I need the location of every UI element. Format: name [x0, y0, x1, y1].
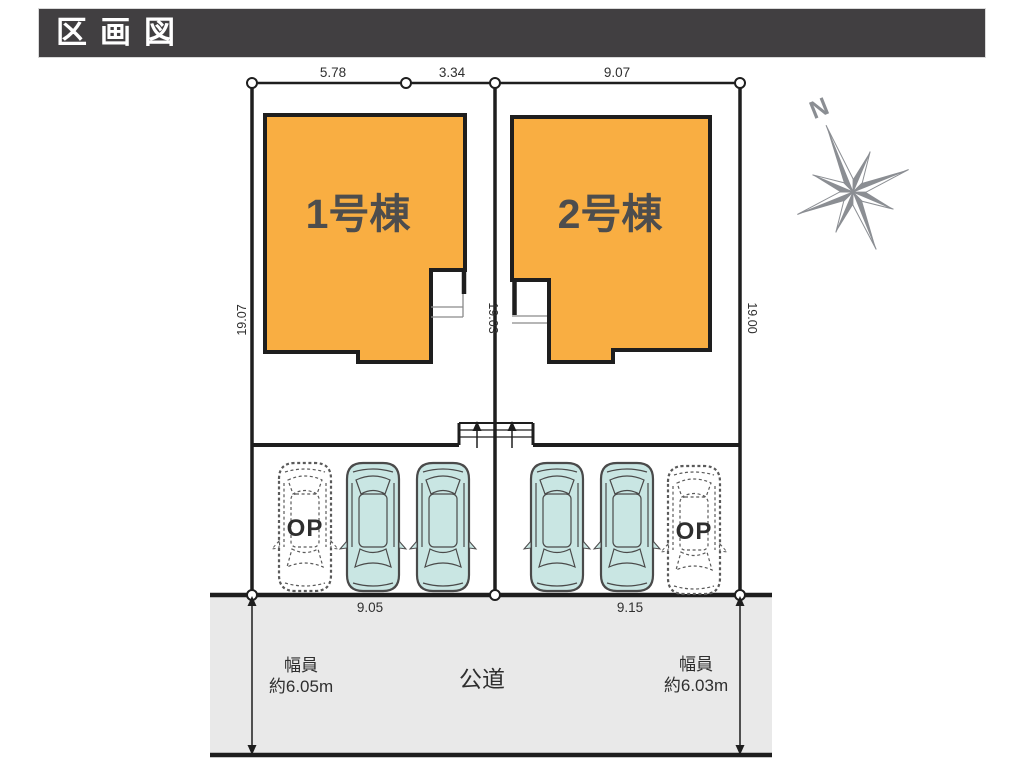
dimension-side-right: 19.00 [745, 302, 759, 333]
car-icon [524, 463, 590, 591]
dimension-bottom-1: 9.05 [357, 600, 383, 615]
car-icon [340, 463, 406, 591]
road-width-left-line1: 幅員 [284, 656, 318, 675]
op-label: OP [287, 515, 324, 542]
road-width-right-line2: 約6.03m [664, 676, 728, 695]
dimension-side-left: 19.07 [235, 304, 249, 335]
north-label: N [806, 92, 833, 125]
building-1-footprint [265, 115, 465, 362]
car-icon [594, 463, 660, 591]
road-width-right-line1: 幅員 [679, 655, 713, 674]
op-label: OP [676, 518, 713, 545]
car-icon [410, 463, 476, 591]
dimension-top-2: 3.34 [439, 65, 466, 80]
compass-rose-icon: N [758, 73, 931, 272]
dimension-side-middle: 19.03 [486, 302, 500, 333]
dimension-top-1: 5.78 [320, 65, 346, 80]
road-width-left-line2: 約6.05m [269, 677, 333, 696]
dimension-top-3: 9.07 [604, 65, 630, 80]
site-plan-svg: 1号棟 2号棟 OP OP [0, 0, 1027, 770]
building-2-label: 2号棟 [558, 191, 664, 237]
building-1-label: 1号棟 [306, 191, 412, 237]
dimension-bottom-2: 9.15 [617, 600, 643, 615]
road-label: 公道 [459, 666, 505, 692]
parking-cars: OP OP [272, 463, 727, 594]
building-2-footprint [512, 117, 710, 362]
